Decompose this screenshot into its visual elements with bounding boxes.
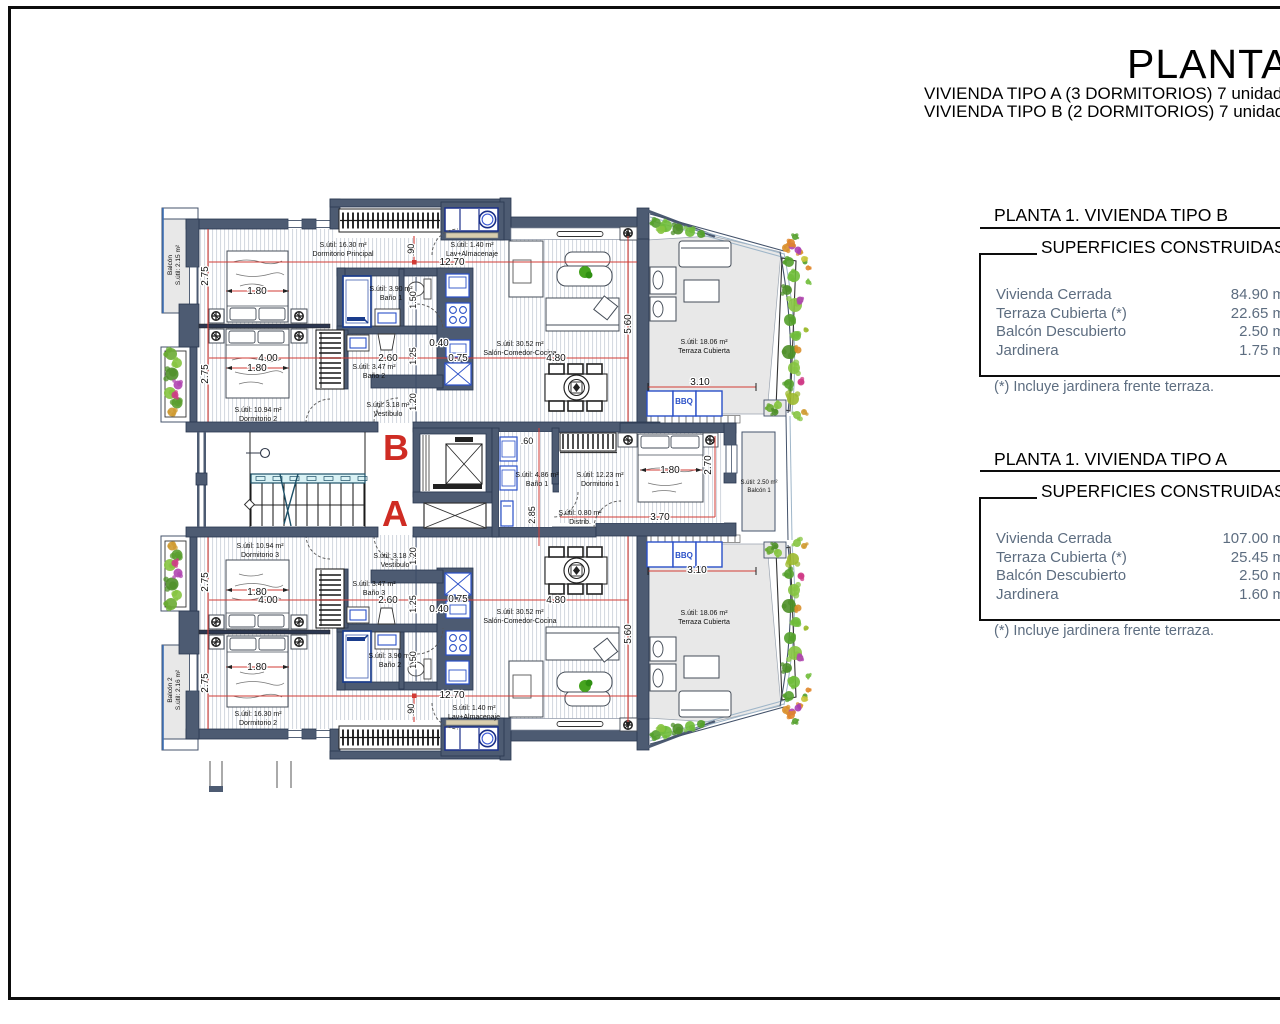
svg-text:1.80: 1.80 xyxy=(247,363,267,374)
svg-text:Vestíbulo: Vestíbulo xyxy=(374,411,403,418)
svg-text:Dormitorio 3: Dormitorio 3 xyxy=(241,552,279,559)
svg-text:Baño 2: Baño 2 xyxy=(379,662,401,669)
svg-text:0.40: 0.40 xyxy=(429,604,449,615)
svg-text:2.60: 2.60 xyxy=(378,595,398,606)
svg-text:1.80: 1.80 xyxy=(247,587,267,598)
svg-text:Baño 2: Baño 2 xyxy=(363,373,385,380)
svg-text:S.útil: 30.52 m²: S.útil: 30.52 m² xyxy=(496,341,544,348)
svg-text:5.60: 5.60 xyxy=(623,624,634,644)
svg-text:S.útil: 16.30 m²: S.útil: 16.30 m² xyxy=(319,242,367,249)
svg-text:S.útil: 10.94 m²: S.útil: 10.94 m² xyxy=(234,407,282,414)
svg-text:4.80: 4.80 xyxy=(546,353,566,364)
svg-text:S.útil: 30.52 m²: S.útil: 30.52 m² xyxy=(496,609,544,616)
svg-text:1.25: 1.25 xyxy=(408,347,418,365)
svg-text:2.75: 2.75 xyxy=(200,673,211,693)
svg-text:Balcón: Balcón xyxy=(167,255,174,275)
svg-text:Dormitorio 1: Dormitorio 1 xyxy=(581,481,619,488)
svg-text:Terraza Cubierta: Terraza Cubierta xyxy=(678,348,730,355)
svg-text:.60: .60 xyxy=(521,436,534,446)
svg-text:Balcón 2: Balcón 2 xyxy=(167,677,174,703)
svg-text:S.útil: 1.40 m²: S.útil: 1.40 m² xyxy=(450,242,494,249)
svg-text:2.60: 2.60 xyxy=(378,353,398,364)
svg-text:1.80: 1.80 xyxy=(247,662,267,673)
svg-text:S.útil: 18.06 m²: S.útil: 18.06 m² xyxy=(680,339,728,346)
svg-text:5.60: 5.60 xyxy=(623,314,634,334)
svg-text:S.útil: 0.80 m²: S.útil: 0.80 m² xyxy=(558,510,602,517)
svg-text:2.75: 2.75 xyxy=(200,364,211,384)
svg-text:Baño 1: Baño 1 xyxy=(526,481,548,488)
svg-text:S.útil: 2.16 m²: S.útil: 2.16 m² xyxy=(175,669,182,710)
svg-text:1.50: 1.50 xyxy=(408,651,418,669)
svg-text:0.40: 0.40 xyxy=(429,338,449,349)
svg-text:1.25: 1.25 xyxy=(408,595,418,613)
svg-text:S.útil: 1.40 m²: S.útil: 1.40 m² xyxy=(452,705,496,712)
svg-text:3.70: 3.70 xyxy=(650,512,670,523)
svg-text:S.útil: 3.47 m²: S.útil: 3.47 m² xyxy=(352,581,396,588)
svg-text:Dormitorio 2: Dormitorio 2 xyxy=(239,720,277,727)
svg-text:1.20: 1.20 xyxy=(408,547,418,565)
svg-text:A: A xyxy=(382,493,408,534)
svg-text:BBQ: BBQ xyxy=(675,551,693,560)
svg-text:S.útil: 18.06 m²: S.útil: 18.06 m² xyxy=(680,610,728,617)
svg-text:2.75: 2.75 xyxy=(200,572,211,592)
svg-text:1.20: 1.20 xyxy=(408,393,418,411)
svg-text:B: B xyxy=(383,427,409,468)
svg-text:S.útil: 2.50 m²: S.útil: 2.50 m² xyxy=(740,480,777,486)
svg-text:Baño 1: Baño 1 xyxy=(380,295,402,302)
svg-text:S.útil: 2.15 m²: S.útil: 2.15 m² xyxy=(175,244,182,285)
svg-text:S.útil: 3.18 m²: S.útil: 3.18 m² xyxy=(366,402,410,409)
svg-text:S.útil: 10.94 m²: S.útil: 10.94 m² xyxy=(236,543,284,550)
svg-text:4.80: 4.80 xyxy=(546,595,566,606)
svg-text:Lav+Almacenaje: Lav+Almacenaje xyxy=(448,714,500,721)
svg-text:Vestíbulo: Vestíbulo xyxy=(381,562,410,569)
svg-text:3.10: 3.10 xyxy=(687,565,707,576)
svg-text:Dormitorio Principal: Dormitorio Principal xyxy=(312,251,374,258)
svg-text:2.75: 2.75 xyxy=(200,266,211,286)
svg-text:S.útil: 12.23 m²: S.útil: 12.23 m² xyxy=(576,472,624,479)
svg-text:1.80: 1.80 xyxy=(247,286,267,297)
svg-text:2.70: 2.70 xyxy=(703,455,714,475)
svg-text:Balcón 1: Balcón 1 xyxy=(747,488,771,494)
svg-text:Distrib.: Distrib. xyxy=(569,519,591,526)
svg-text:12.70: 12.70 xyxy=(439,257,464,268)
svg-text:2.85: 2.85 xyxy=(527,506,537,524)
svg-text:.90: .90 xyxy=(406,704,416,717)
svg-text:.90: .90 xyxy=(406,244,416,257)
svg-text:S.útil: 3.47 m²: S.útil: 3.47 m² xyxy=(352,364,396,371)
svg-text:12.70: 12.70 xyxy=(439,690,464,701)
svg-text:0.75: 0.75 xyxy=(448,594,468,605)
svg-text:Terraza Cubierta: Terraza Cubierta xyxy=(678,619,730,626)
svg-text:S.útil: 3.90 m²: S.útil: 3.90 m² xyxy=(369,286,413,293)
svg-text:S.útil: 4.86 m²: S.útil: 4.86 m² xyxy=(515,472,559,479)
svg-text:3.10: 3.10 xyxy=(690,377,710,388)
svg-text:S.útil: 3.90 m²: S.útil: 3.90 m² xyxy=(368,653,412,660)
svg-text:S.útil: 16.30 m²: S.útil: 16.30 m² xyxy=(234,711,282,718)
svg-text:1.80: 1.80 xyxy=(660,465,680,476)
svg-text:1.50: 1.50 xyxy=(408,291,418,309)
svg-text:Salón-Comedor-Cocina: Salón-Comedor-Cocina xyxy=(483,618,556,625)
svg-text:Dormitorio 2: Dormitorio 2 xyxy=(239,416,277,423)
svg-text:BBQ: BBQ xyxy=(675,397,693,406)
svg-text:0.75: 0.75 xyxy=(448,353,468,364)
